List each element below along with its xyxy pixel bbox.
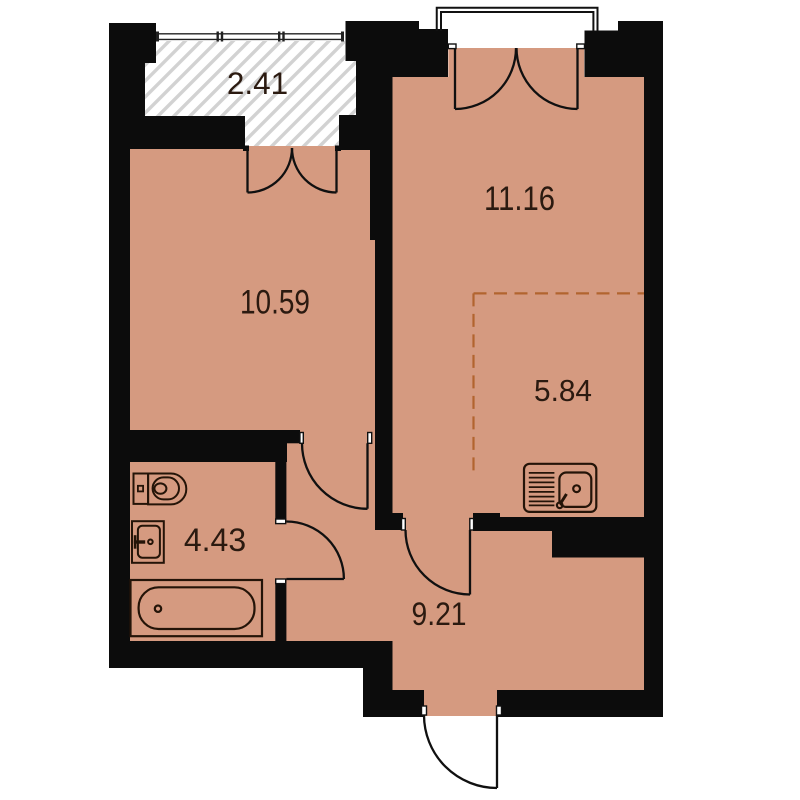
svg-text:11.16: 11.16	[484, 180, 555, 218]
svg-text:4.43: 4.43	[184, 522, 246, 558]
svg-text:9.21: 9.21	[412, 596, 467, 632]
svg-text:2.41: 2.41	[227, 65, 288, 101]
svg-text:10.59: 10.59	[240, 284, 310, 322]
svg-text:5.84: 5.84	[534, 373, 592, 408]
